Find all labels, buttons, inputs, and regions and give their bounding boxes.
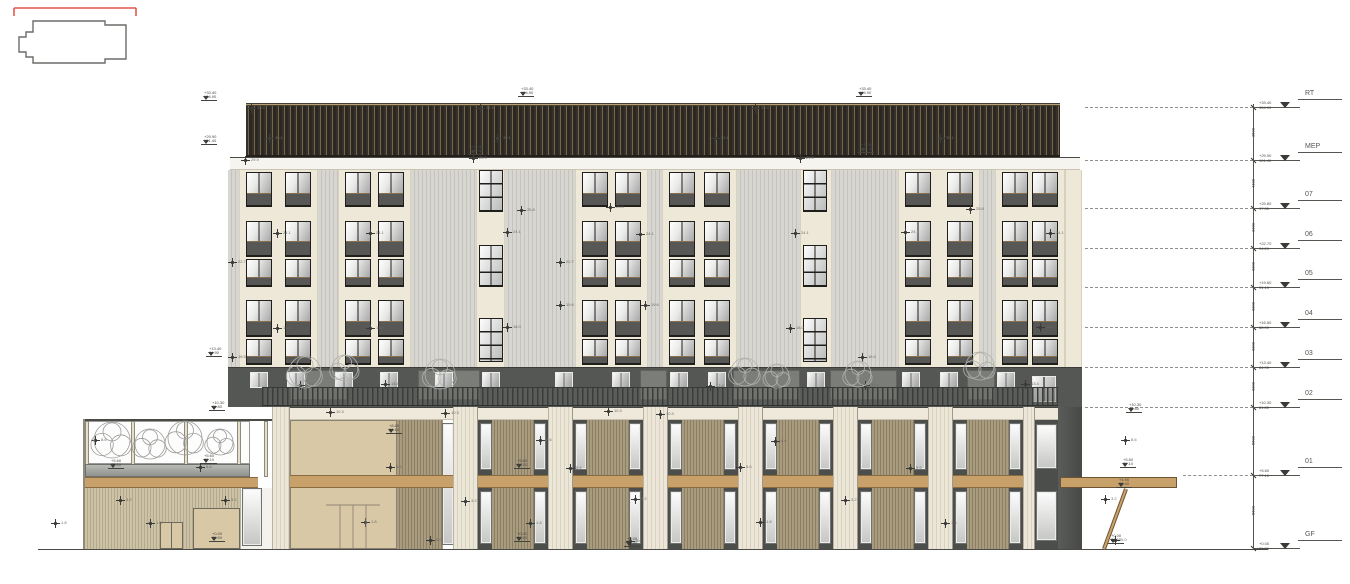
- spot-elevation-value: 10.3: [451, 410, 459, 415]
- window-spandrel: [346, 193, 370, 205]
- window-glass: [948, 173, 972, 193]
- spot-elevation-marker: [441, 409, 450, 418]
- window-spandrel: [616, 241, 640, 255]
- window-glass: [247, 222, 271, 241]
- spot-elevation-marker: [273, 324, 282, 333]
- spot-elevation-marker: [247, 104, 256, 113]
- spot-elevation-marker: [861, 381, 870, 390]
- window-spandrel: [247, 356, 271, 363]
- spot-elevation-value: 24.1: [283, 230, 291, 235]
- tower-window: [669, 172, 695, 207]
- window-spandrel: [1003, 356, 1027, 363]
- tower-window: [246, 172, 272, 207]
- tower-window: [1002, 339, 1028, 365]
- window-spandrel: [379, 277, 403, 285]
- window-spandrel: [705, 356, 729, 363]
- podium-window: [576, 492, 586, 543]
- spot-flag-elev-abs: 77.10: [111, 463, 121, 467]
- stair-window: [479, 170, 503, 212]
- tower-rib-panel: [832, 170, 898, 367]
- tower-window: [704, 221, 730, 257]
- spot-elevation-value: 18.0: [513, 324, 521, 329]
- stair-window: [803, 170, 827, 212]
- window-glass: [286, 260, 310, 277]
- dimension-value: 3300: [1251, 296, 1256, 318]
- band-window: [612, 372, 630, 388]
- level-elev-abs: 104.90: [1259, 106, 1271, 110]
- spot-elevation-value: 1.8: [371, 519, 377, 524]
- spot-elevation-value: 13.4: [716, 383, 724, 388]
- podium-slat-screen: [777, 420, 819, 475]
- spot-elevation-value: 0.0: [1121, 537, 1127, 542]
- spot-elevation-marker: [841, 496, 850, 505]
- spot-elevation-value: 24.1: [801, 230, 809, 235]
- spot-elevation-marker: [941, 519, 950, 528]
- window-spandrel: [906, 356, 930, 363]
- window-glass: [670, 222, 694, 241]
- podium-window: [820, 492, 830, 543]
- stair-window-glass: [480, 319, 502, 361]
- window-glass: [705, 340, 729, 356]
- podium-pilaster: [548, 407, 573, 549]
- tower-window: [246, 300, 272, 337]
- tower-window: [378, 259, 404, 287]
- tower-window: [246, 221, 272, 257]
- spot-elevation-value: 24.1: [646, 231, 654, 236]
- window-glass: [286, 340, 310, 356]
- spot-elevation-marker: [228, 258, 237, 267]
- window-spandrel: [906, 277, 930, 285]
- spot-elevation-value: 22.7: [566, 259, 574, 264]
- level-dashed-line: [1085, 248, 1253, 249]
- spot-elevation-marker: [901, 228, 910, 237]
- ground-line: [38, 549, 1268, 550]
- spot-elevation-marker: [366, 324, 375, 333]
- window-spandrel: [1003, 277, 1027, 285]
- spot-elevation-marker: [1111, 536, 1120, 545]
- level-flag-triangle: [1280, 543, 1290, 549]
- level-dashed-line: [1085, 208, 1253, 209]
- window-spandrel: [247, 241, 271, 255]
- window-spandrel: [705, 277, 729, 285]
- spot-elevation-marker: [146, 519, 155, 528]
- spot-elevation-value: 3.2: [231, 497, 237, 502]
- window-glass: [247, 340, 271, 356]
- spot-elevation-value: 5.6: [746, 464, 752, 469]
- tower-rib-panel: [411, 170, 476, 367]
- tower-window: [1032, 172, 1058, 207]
- podium-window: [481, 424, 491, 469]
- spot-elevation-marker: [469, 154, 478, 163]
- band-window: [335, 372, 353, 388]
- level-flag-triangle: [1280, 243, 1290, 249]
- spot-elevation-value: 33.4: [486, 105, 494, 110]
- spot-flag-elev-abs: 80.10: [389, 428, 399, 432]
- window-glass: [616, 173, 640, 193]
- level-label-line: [1298, 399, 1342, 400]
- window-glass: [583, 173, 607, 193]
- podium-window: [766, 424, 776, 469]
- dimension-value: 3500: [1251, 122, 1256, 144]
- tower-window: [905, 339, 931, 365]
- podium-slat-screen: [967, 488, 1009, 549]
- spot-elevation-value: 8.6: [1131, 437, 1137, 442]
- spot-elevation-value: 8.6: [101, 437, 107, 442]
- podium-window: [671, 492, 681, 543]
- spot-flag-elev-abs: 84.90: [209, 351, 219, 355]
- spot-elevation-marker: [966, 205, 975, 214]
- wing-window: [243, 489, 261, 545]
- window-glass: [670, 173, 694, 193]
- spot-flag-elev-abs: 71.50: [212, 536, 222, 540]
- tower-window: [582, 221, 608, 257]
- window-glass: [379, 173, 403, 193]
- spot-elevation-value: 10.3: [614, 408, 622, 413]
- level-flag-triangle: [1280, 322, 1290, 328]
- spot-elevation-marker: [426, 536, 435, 545]
- window-spandrel: [670, 193, 694, 205]
- level-label: 04: [1305, 310, 1345, 317]
- spot-elevation-value: 24.1: [513, 229, 521, 234]
- window-glass: [346, 301, 370, 321]
- spot-elevation-marker: [296, 381, 305, 390]
- window-spandrel: [1003, 241, 1027, 255]
- window-glass: [1033, 301, 1057, 321]
- window-spandrel: [286, 277, 310, 285]
- level-dashed-line: [1085, 407, 1253, 408]
- level-flag-triangle: [1280, 470, 1290, 476]
- stair-window-glass: [480, 246, 502, 286]
- window-glass: [616, 340, 640, 356]
- roof-louver-screen: [246, 106, 1060, 157]
- spot-elevation-value: 8.6: [546, 437, 552, 442]
- spot-elevation-value: 0.0: [436, 537, 442, 542]
- window-glass: [1003, 340, 1027, 356]
- window-glass: [616, 260, 640, 277]
- level-elev-abs: 71.50: [1259, 547, 1269, 551]
- spot-elevation-marker: [221, 496, 230, 505]
- level-label-line: [1298, 279, 1342, 280]
- tower-window: [704, 300, 730, 337]
- spot-flag-line: [1120, 467, 1136, 468]
- spot-flag-elev-abs: 104.90: [521, 91, 533, 95]
- spot-elevation-marker: [796, 154, 805, 163]
- spot-elevation-marker: [91, 436, 100, 445]
- window-spandrel: [948, 241, 972, 255]
- spot-elevation-value: 3.2: [471, 498, 477, 503]
- tower-window: [378, 300, 404, 337]
- spot-elevation-value: 24.1: [911, 229, 919, 234]
- spot-flag-line: [514, 468, 530, 469]
- spot-flag-elev-abs: 104.90: [859, 91, 871, 95]
- tower-window: [345, 259, 371, 287]
- spot-elevation-marker: [326, 408, 335, 417]
- tower-window: [947, 259, 973, 287]
- podium-slat-screen: [682, 488, 724, 549]
- spot-elevation-value: 33.4: [1026, 105, 1034, 110]
- window-spandrel: [1003, 321, 1027, 335]
- window-spandrel: [583, 321, 607, 335]
- window-glass: [670, 260, 694, 277]
- spot-flag-line: [206, 356, 222, 357]
- level-label-line: [1298, 200, 1342, 201]
- spot-elevation-marker: [273, 229, 282, 238]
- tower-window: [1002, 221, 1028, 257]
- podium-slat-screen: [492, 420, 534, 475]
- window-spandrel: [1033, 241, 1057, 255]
- tower-window: [345, 172, 371, 207]
- level-flag-triangle: [1280, 402, 1290, 408]
- podium-window: [915, 424, 925, 469]
- podium-window: [820, 424, 830, 469]
- terrace-railing: [262, 387, 1058, 406]
- tower-window: [669, 221, 695, 257]
- podium-window: [861, 424, 871, 469]
- wing-wood-band: [85, 477, 258, 488]
- spot-elevation-value: 25.8: [527, 207, 535, 212]
- podium-window: [535, 492, 545, 543]
- podium-window: [481, 492, 491, 543]
- level-dashed-line: [1085, 107, 1253, 108]
- spot-elevation-marker: [771, 437, 780, 446]
- podium-slat-screen: [682, 420, 724, 475]
- spot-elevation-marker: [228, 353, 237, 362]
- spot-elevation-value: 3.2: [126, 497, 132, 502]
- window-spandrel: [705, 241, 729, 255]
- window-spandrel: [670, 241, 694, 255]
- podium-window: [956, 492, 966, 543]
- spot-elevation-value: 30.1: [275, 135, 283, 140]
- elevation-sheet: RT+33.40104.90MEP+29.90101.4007+25.8097.…: [0, 0, 1350, 584]
- spot-flag-elev-abs: 77.10: [517, 463, 527, 467]
- spot-elevation-marker: [791, 229, 800, 238]
- stair-window-glass: [804, 246, 826, 286]
- spot-flag-line: [518, 96, 534, 97]
- podium-pilaster: [1023, 407, 1035, 549]
- window-spandrel: [583, 193, 607, 205]
- spot-flag-line: [201, 144, 217, 145]
- spot-elevation-marker: [1101, 495, 1110, 504]
- dimension-value: 5600: [1251, 500, 1256, 522]
- level-label-line: [1298, 152, 1342, 153]
- window-glass: [670, 301, 694, 321]
- spot-elevation-value: 8.6: [781, 438, 787, 443]
- spot-elevation-marker: [556, 301, 565, 310]
- window-spandrel: [616, 277, 640, 285]
- spot-elevation-marker: [736, 463, 745, 472]
- window-glass: [906, 301, 930, 321]
- spot-elevation-marker: [604, 407, 613, 416]
- window-glass: [670, 340, 694, 356]
- window-spandrel: [583, 241, 607, 255]
- window-glass: [247, 260, 271, 277]
- wing-garage-door: [193, 508, 240, 549]
- window-spandrel: [346, 356, 370, 363]
- spot-elevation-value: 5.6: [396, 464, 402, 469]
- window-spandrel: [616, 321, 640, 335]
- podium-slat-screen: [967, 420, 1009, 475]
- tower-window: [905, 221, 931, 257]
- tower-window: [947, 339, 973, 365]
- podium-window: [766, 492, 776, 543]
- window-glass: [705, 260, 729, 277]
- spot-flag-elev-abs: 104.30: [861, 147, 873, 151]
- podium-window: [630, 424, 640, 469]
- level-label: 01: [1305, 458, 1345, 465]
- spot-flag-line: [209, 410, 225, 411]
- window-spandrel: [346, 277, 370, 285]
- spot-elevation-value: 1.8: [61, 520, 67, 525]
- spot-elevation-marker: [1046, 229, 1055, 238]
- roof-cap: [246, 103, 1060, 106]
- spot-elevation-value: 24.1: [1056, 230, 1064, 235]
- spot-elevation-value: 19.6: [566, 302, 574, 307]
- band-window: [807, 372, 825, 388]
- window-spandrel: [1033, 277, 1057, 285]
- window-glass: [906, 260, 930, 277]
- podium-window: [671, 424, 681, 469]
- tower-window: [704, 259, 730, 287]
- tower-window: [947, 300, 973, 337]
- window-spandrel: [379, 356, 403, 363]
- window-spandrel: [616, 356, 640, 363]
- spot-elevation-marker: [503, 323, 512, 332]
- tower-rib-panel: [980, 170, 995, 367]
- tower-window: [615, 172, 641, 207]
- spot-elevation-marker: [751, 104, 760, 113]
- band-window: [435, 372, 453, 388]
- dimension-value: 3300: [1251, 217, 1256, 239]
- window-spandrel: [906, 321, 930, 335]
- dimension-value: 3300: [1251, 336, 1256, 358]
- dimension-value: 4100: [1251, 173, 1256, 195]
- spot-elevation-value: 13.4: [871, 382, 879, 387]
- level-elev-abs: 84.90: [1259, 366, 1269, 370]
- podium-slat-screen: [872, 488, 914, 549]
- window-glass: [346, 260, 370, 277]
- band-window: [482, 372, 500, 388]
- spot-elevation-value: 13.4: [306, 382, 314, 387]
- level-flag-triangle: [1280, 203, 1290, 209]
- spot-elevation-value: 29.9: [806, 155, 814, 160]
- wing-glass-balustrade: [85, 421, 250, 464]
- spot-flag-line: [624, 546, 640, 547]
- tower-rib-panel: [505, 170, 575, 367]
- tower-window: [1032, 259, 1058, 287]
- spot-flag-elev-abs: 101.40: [204, 139, 216, 143]
- tower-window: [1002, 259, 1028, 287]
- spot-flag-elev-abs: 76.40: [1119, 482, 1129, 486]
- level-label: GF: [1305, 531, 1345, 538]
- spot-elevation-value: 25.8: [976, 206, 984, 211]
- band-window: [940, 372, 958, 388]
- spot-flag-elev-abs: 81.80: [212, 405, 222, 409]
- tower-window: [285, 339, 311, 365]
- spot-elevation-marker: [361, 518, 370, 527]
- band-window: [555, 372, 573, 388]
- spot-elevation-marker: [631, 495, 640, 504]
- spot-flag-line: [108, 468, 124, 469]
- spot-flag-line: [386, 433, 402, 434]
- spot-elevation-value: 19.6: [651, 302, 659, 307]
- level-dashed-line: [1085, 287, 1253, 288]
- spot-flag-elev-abs: 77.10: [1123, 462, 1133, 466]
- podium-pilaster: [643, 407, 668, 549]
- tower-window: [582, 339, 608, 365]
- window-spandrel: [670, 321, 694, 335]
- window-spandrel: [948, 321, 972, 335]
- spot-elevation-marker: [626, 537, 635, 546]
- spot-elevation-marker: [503, 228, 512, 237]
- tower-window: [615, 300, 641, 337]
- band-window: [670, 372, 688, 388]
- window-spandrel: [286, 356, 310, 363]
- spot-elevation-marker: [265, 134, 274, 143]
- tower-window: [615, 221, 641, 257]
- spot-elevation-value: 10.3: [666, 411, 674, 416]
- spot-elevation-marker: [656, 410, 665, 419]
- podium-pilaster: [833, 407, 858, 549]
- level-label-line: [1298, 467, 1342, 468]
- window-glass: [906, 173, 930, 193]
- spot-elevation-value: 5.6: [916, 465, 922, 470]
- wing-door-split: [171, 522, 172, 549]
- window-spandrel: [705, 321, 729, 335]
- spot-elevation-value: 3.2: [641, 496, 647, 501]
- level-label: 02: [1305, 390, 1345, 397]
- window-glass: [583, 301, 607, 321]
- spot-elevation-marker: [461, 497, 470, 506]
- dimension-value: 3300: [1251, 256, 1256, 278]
- spot-elevation-value: 25.8: [616, 204, 624, 209]
- spot-elevation-marker: [786, 324, 795, 333]
- spot-elevation-marker: [936, 134, 945, 143]
- window-spandrel: [1033, 193, 1057, 205]
- spot-flag-line: [858, 152, 874, 153]
- spot-elevation-marker: [606, 203, 615, 212]
- podium-right-window: [1037, 492, 1056, 540]
- spot-elevation-marker: [526, 519, 535, 528]
- tower-window: [669, 300, 695, 337]
- podium-pilaster: [272, 407, 290, 549]
- window-spandrel: [670, 277, 694, 285]
- tower-window: [246, 339, 272, 365]
- podium-window: [915, 492, 925, 543]
- window-spandrel: [379, 193, 403, 205]
- tower-window: [947, 172, 973, 207]
- spot-elevation-value: 1.8: [156, 520, 162, 525]
- window-glass: [948, 301, 972, 321]
- level-label: 07: [1305, 191, 1345, 198]
- spot-flag-elev-abs: 77.10: [204, 458, 214, 462]
- podium-window: [861, 492, 871, 543]
- spot-elevation-value: 1.8: [536, 520, 542, 525]
- spot-elevation-marker: [476, 104, 485, 113]
- tower-window: [582, 300, 608, 337]
- window-glass: [1033, 340, 1057, 356]
- level-label: 03: [1305, 350, 1345, 357]
- spot-elevation-value: 0.0: [636, 538, 642, 543]
- window-glass: [705, 173, 729, 193]
- tower-window: [1002, 300, 1028, 337]
- window-glass: [583, 222, 607, 241]
- tower-rib-panel: [318, 170, 338, 367]
- spot-flag-elev-abs: 81.80: [1129, 407, 1139, 411]
- tower-rib-panel: [737, 170, 800, 367]
- spot-elevation-value: 1.8: [951, 520, 957, 525]
- window-glass: [948, 340, 972, 356]
- spot-elevation-value: 33.4: [257, 105, 265, 110]
